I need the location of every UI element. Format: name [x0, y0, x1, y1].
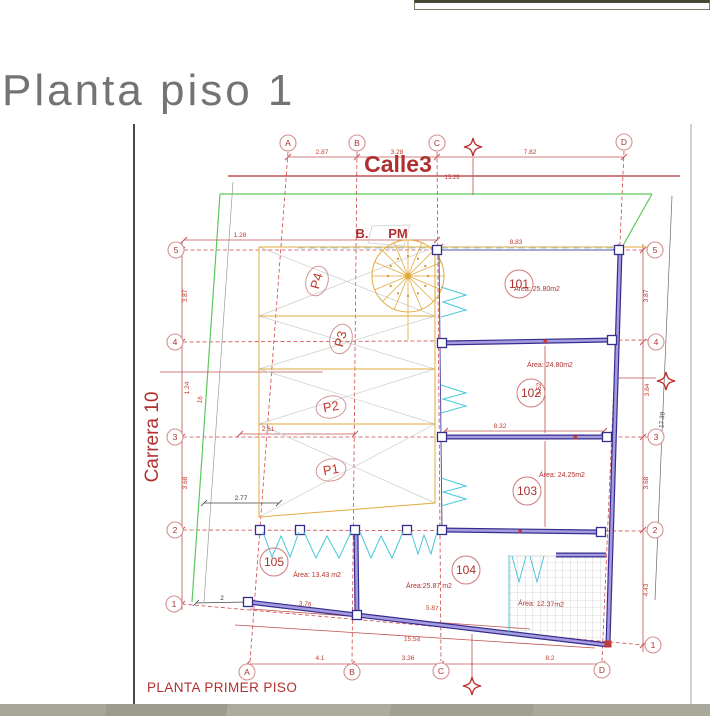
- dim-g5-cd: 8.83: [510, 239, 523, 246]
- grid-row-2-left: 2: [173, 525, 178, 535]
- grid-row-5-left: 5: [174, 245, 179, 255]
- grid-col-a-bottom: A: [244, 667, 250, 677]
- grid-col-c-top: C: [434, 138, 440, 148]
- dim-street-total: 15.29: [444, 175, 460, 181]
- dim-wall-b1: 3.76: [299, 601, 312, 609]
- grid-row-1-right: 1: [651, 640, 656, 650]
- grid-row-3-right: 3: [654, 432, 659, 442]
- dim-right-slope: 17.39: [658, 411, 666, 428]
- grid-row-4-left: 4: [173, 337, 178, 347]
- dim-wall-total: 15.54: [404, 636, 421, 644]
- floor-plan-svg: A B C D A B C D 5 4 3 2 1 5 4 3 2 1 Call…: [0, 0, 710, 716]
- grid-col-b-top: B: [354, 138, 360, 148]
- dim-left-3-2: 3.68: [182, 476, 189, 489]
- dim-right-3-2: 3.68: [643, 476, 650, 489]
- footer-band: [0, 704, 710, 716]
- unit-101-area: Área: 25.80m2: [514, 284, 560, 293]
- dim-g3-left: 2.61: [262, 426, 275, 433]
- grid-row-5-right: 5: [653, 245, 658, 255]
- dim-right-5-4: 3.87: [643, 289, 650, 302]
- dim-bot-ab: 4.1: [315, 655, 324, 662]
- dim-g3-span: 8.32: [494, 423, 507, 430]
- drawing-caption: PLANTA PRIMER PISO: [147, 680, 297, 695]
- grid-row-4-right: 4: [654, 337, 659, 347]
- dim-top-ab: 2.87: [316, 149, 329, 156]
- parking-p4-label: P4: [307, 271, 326, 290]
- grid-col-d-bottom: D: [599, 665, 605, 675]
- unit-105-number: 105: [264, 555, 284, 569]
- dim-room-depth: 3.52: [536, 382, 543, 395]
- unit-103-number: 103: [517, 484, 537, 498]
- north-arrow-bottom-icon: [463, 677, 481, 695]
- street-label-carrera10: Carrera 10: [142, 392, 163, 483]
- parking-p2-label: P2: [322, 398, 340, 416]
- grid-col-c-bottom: C: [438, 666, 444, 676]
- grid-col-d-top: D: [621, 137, 627, 147]
- dim-left-slope: 16: [196, 395, 204, 404]
- dim-left-5-4: 3.87: [182, 289, 189, 302]
- unit-102-area: Área: 24.80m2: [527, 360, 573, 369]
- parking-p3-label: P3: [331, 329, 350, 348]
- dim-black-a: 2.77: [235, 495, 248, 502]
- dim-bot-cd: 8.2: [545, 655, 554, 662]
- dim-right-4-3: 3.84: [644, 383, 651, 396]
- dim-black-b: 2: [220, 595, 224, 602]
- dim-wall-b2: 5.87: [426, 604, 440, 612]
- door-swing-icons: [263, 287, 544, 634]
- unit-103-area: Área: 24.25m2: [539, 470, 585, 479]
- grid-col-a-top: A: [285, 138, 291, 148]
- dim-left-4-3: 1.24: [184, 381, 191, 394]
- dim-top-cd: 7.82: [524, 149, 537, 156]
- grid-row-3-left: 3: [173, 432, 178, 442]
- parking-p1-label: P1: [322, 461, 340, 479]
- grid-row-2-right: 2: [653, 525, 658, 535]
- unit-105-area: Área: 13.43 m2: [293, 570, 341, 579]
- dim-top-bc: 3.28: [391, 149, 404, 156]
- dim-g5-inner: 1.28: [234, 232, 247, 239]
- unit-104-number: 104: [456, 563, 476, 577]
- bpm-prefix-label: B.: [356, 226, 369, 241]
- dim-right-2-1: 4.43: [643, 583, 650, 596]
- north-arrow-right-icon: [657, 372, 675, 390]
- dim-bot-bc: 3.36: [402, 655, 415, 662]
- unit-104-area: Área:25.87 m2: [406, 581, 452, 590]
- parking-labels: P4 P3 P2 P1: [302, 264, 355, 484]
- bpm-label: PM: [388, 226, 408, 241]
- grid-row-1-left: 1: [172, 599, 177, 609]
- north-arrow-top-icon: [464, 138, 482, 156]
- grid-col-b-bottom: B: [349, 667, 355, 677]
- slide: Planta piso 1: [0, 0, 710, 716]
